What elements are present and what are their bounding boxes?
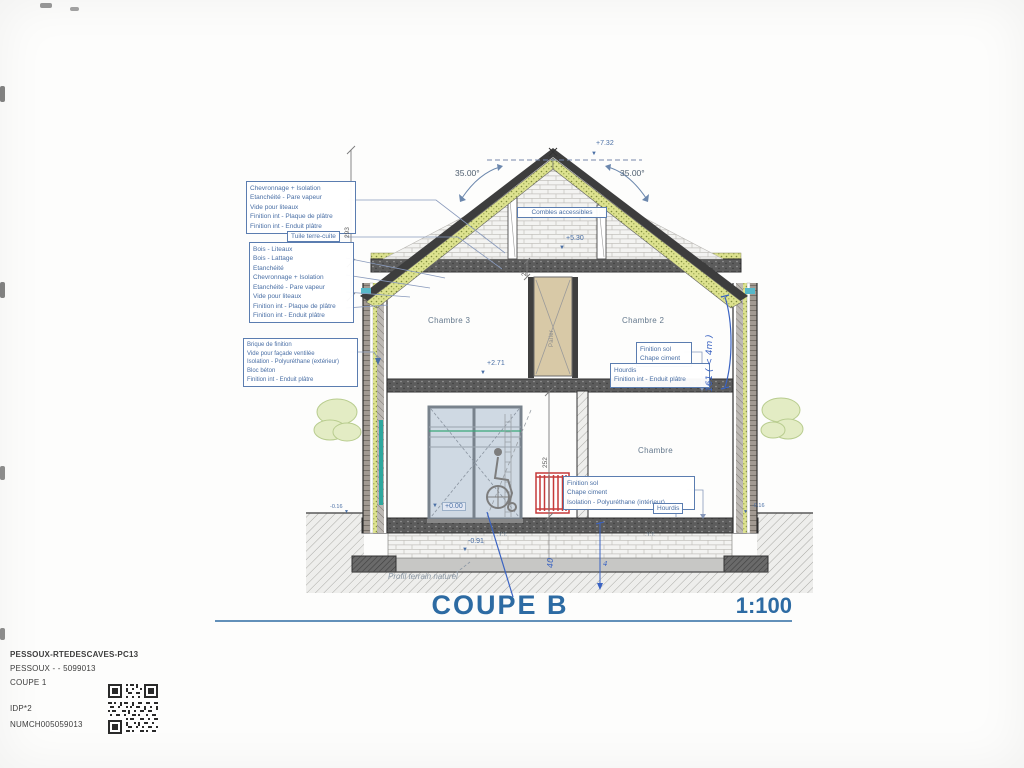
level-footing-marker: ▼ [462,547,468,553]
handwritten-depth-note: 40 [546,558,555,568]
level-grade-right: -0.16 [752,503,765,509]
room-label-attic: Combles accessibles [517,207,607,218]
callout-ground-floor-slab: Hourdis [653,503,683,514]
callout-line: Finition sol [567,479,691,488]
handwritten-right-note: 161 ( < 4m ) [705,334,715,392]
qr-code [108,684,158,734]
right-exterior-wall [733,283,757,533]
drawing-scale: 1:100 [724,593,792,619]
level-ridge: +7.32 [596,140,614,147]
callout-line: Finition int - Plaque de plâtre [250,212,352,221]
level-footing: -0.91 [468,538,484,545]
window-sill [427,519,523,523]
titleblock-sheet-name: COUPE 1 [10,678,47,687]
callout-line: Finition int - Plaque de plâtre [253,302,350,311]
scan-artifacts [0,3,79,640]
roof-angle-right: 35.00° [620,168,645,178]
drawing-title: COUPE B [425,590,575,621]
foundation [352,533,768,572]
callout-line: Bois - Liteaux [253,245,350,254]
dim-roof-height: 293 [344,227,351,238]
landing-door [528,277,578,378]
room-label-bedroom1: Chambre [638,446,673,455]
handwritten-small-note: 4 [603,560,607,568]
room-label-landing: Palier [549,330,555,347]
callout-line: Vide pour liteaux [250,203,352,212]
callout-line: Vide pour liteaux [253,292,350,301]
scanned-sheet: Chevronnage + Isolation Etanchéité - Par… [0,0,1024,768]
callout-tile: Tuile terre-cuite [287,231,340,242]
level-ground-floor: +0.00 [442,502,466,511]
callout-line: Finition int - Enduit plâtre [253,311,350,320]
callout-first-floor-slab: Hourdis Finition int - Enduit plâtre [610,363,710,388]
title-underline [215,620,792,622]
callout-line: Etanchéité [253,264,350,273]
callout-line: Finition int - Enduit plâtre [247,376,354,385]
level-first-floor-marker: ▼ [480,370,486,376]
callout-line: Finition int - Enduit plâtre [614,375,706,384]
callout-line: Chevronnage + Isolation [250,184,352,193]
callout-line: Finition sol [640,345,688,354]
roof-angle-left: 35.00° [455,168,480,178]
teal-pipe [379,420,383,505]
callout-line: Bois - Lattage [253,254,350,263]
callout-line: Finition int - Enduit plâtre [250,222,352,231]
room-label-bedroom2: Chambre 2 [622,316,664,325]
callout-roof-buildup: Chevronnage + Isolation Etanchéité - Par… [246,181,356,234]
dim-slab-thickness: 24 [522,269,528,276]
titleblock-project-name: PESSOUX - - 5099013 [10,664,96,673]
room-label-bedroom3: Chambre 3 [428,316,470,325]
rebar-mark-left: .Y.Y. [497,532,508,538]
callout-line: Etanchéité - Pare vapeur [250,193,352,202]
callout-line: Hourdis [614,366,706,375]
level-attic: +5.30 [566,235,584,242]
titleblock-number: NUMCH005059013 [10,720,83,729]
section-drawing [0,0,1024,768]
callout-line: Isolation - Polyuréthane (extérieur) [247,358,354,367]
callout-line: Bloc béton [247,367,354,376]
callout-line: Chevronnage + Isolation [253,273,350,282]
callout-line: Chape ciment [567,488,691,497]
gutter-right [745,288,755,294]
titleblock-project-code: PESSOUX-RTEDESCAVES-PC13 [10,650,138,659]
callout-line: Etanchéité - Pare vapeur [253,283,350,292]
rebar-mark-right: .Y.Y. [645,532,656,538]
level-grade-left: -0.16 [330,504,343,510]
level-ground-floor-marker: ▼ [432,503,438,509]
level-grade-left-marker: ▼ [344,509,349,515]
bush-right [761,398,803,439]
callout-line: Vide pour façade ventilée [247,350,354,359]
level-grade-right-marker: ▼ [743,509,748,515]
callout-eave-buildup: Bois - Liteaux Bois - Lattage Etanchéité… [249,242,354,323]
level-first-floor: +2.71 [487,360,505,367]
level-ridge-marker: ▼ [591,151,597,157]
callout-wall-buildup: Brique de finition Vide pour façade vent… [243,338,358,387]
bush-left [314,399,361,441]
dim-storey-height: 252 [542,457,549,468]
terrain-label: Profil terrain naturel [388,572,458,581]
left-exterior-wall [363,283,387,533]
callout-line: Brique de finition [247,341,354,350]
level-attic-marker: ▼ [559,245,565,251]
titleblock-id: IDP*2 [10,704,32,713]
